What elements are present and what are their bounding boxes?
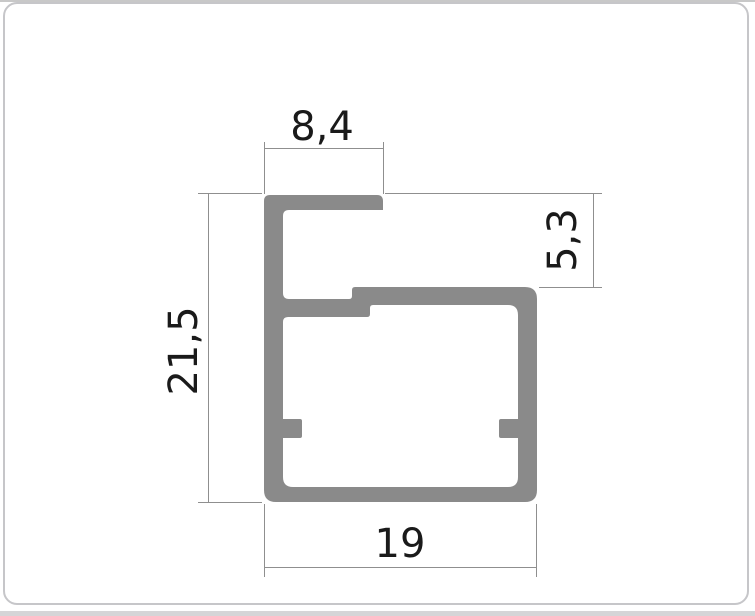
profile-cross-section-shape	[264, 195, 537, 502]
screenshot-stage: 8,4 21,5 5,3 19	[0, 0, 755, 616]
dim-top-label: 8,4	[290, 104, 354, 150]
dim-left	[198, 193, 262, 503]
profile-drawing: 8,4 21,5 5,3 19	[0, 0, 755, 616]
dim-right-label: 5,3	[540, 208, 586, 272]
dim-left-label: 21,5	[161, 306, 207, 395]
dim-bottom-label: 19	[375, 521, 426, 567]
